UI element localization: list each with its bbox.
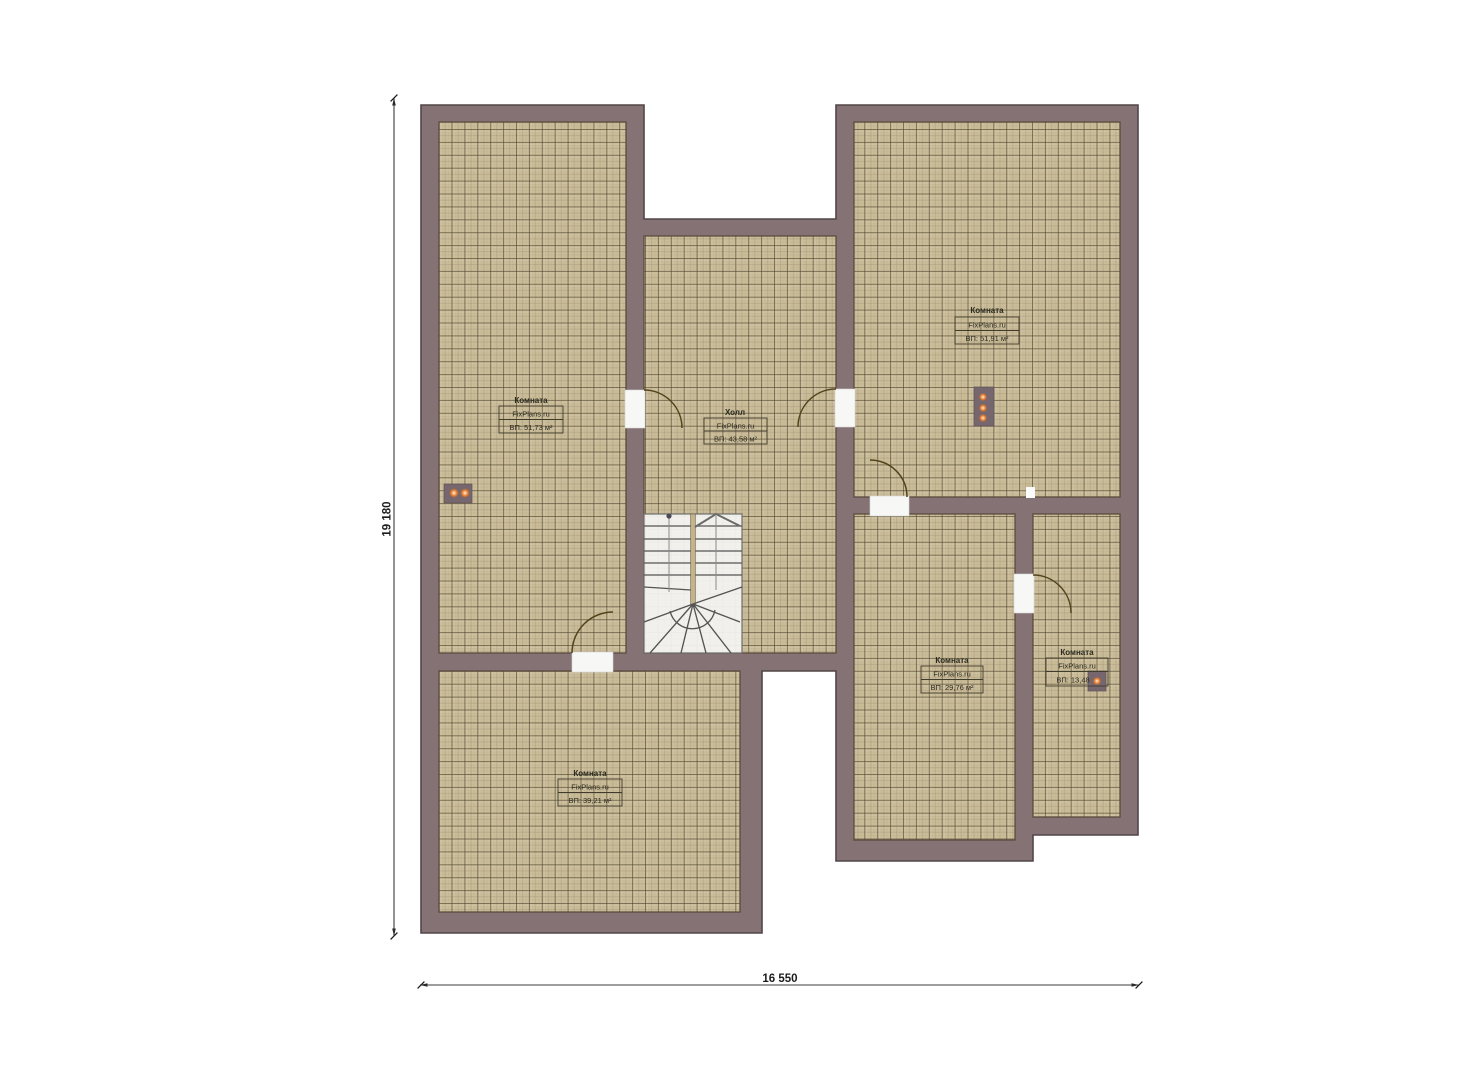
svg-text:Холл: Холл xyxy=(725,408,745,417)
svg-text:ВП: 29,76 м²: ВП: 29,76 м² xyxy=(930,683,974,692)
svg-text:FixPlans.ru: FixPlans.ru xyxy=(933,670,971,679)
svg-text:FixPlans.ru: FixPlans.ru xyxy=(512,410,550,419)
svg-text:Комната: Комната xyxy=(1060,648,1094,657)
svg-text:ВП: 39,21 м²: ВП: 39,21 м² xyxy=(568,796,612,805)
svg-text:ВП: 51,91 м²: ВП: 51,91 м² xyxy=(965,334,1009,343)
svg-text:ВП: 13,48: ВП: 13,48 xyxy=(1056,676,1089,685)
svg-text:FixPlans.ru: FixPlans.ru xyxy=(717,422,755,431)
svg-text:Комната: Комната xyxy=(573,769,607,778)
svg-text:FixPlans.ru: FixPlans.ru xyxy=(1058,662,1096,671)
svg-text:19 180: 19 180 xyxy=(382,501,394,536)
svg-text:FixPlans.ru: FixPlans.ru xyxy=(571,783,609,792)
svg-text:Комната: Комната xyxy=(514,396,548,405)
svg-text:Комната: Комната xyxy=(970,306,1004,315)
svg-text:16 550: 16 550 xyxy=(762,973,797,985)
svg-text:FixPlans.ru: FixPlans.ru xyxy=(968,321,1006,330)
svg-text:ВП: 43,58 м²: ВП: 43,58 м² xyxy=(714,435,758,444)
svg-text:Комната: Комната xyxy=(935,656,969,665)
svg-text:ВП: 51,73 м²: ВП: 51,73 м² xyxy=(509,423,553,432)
